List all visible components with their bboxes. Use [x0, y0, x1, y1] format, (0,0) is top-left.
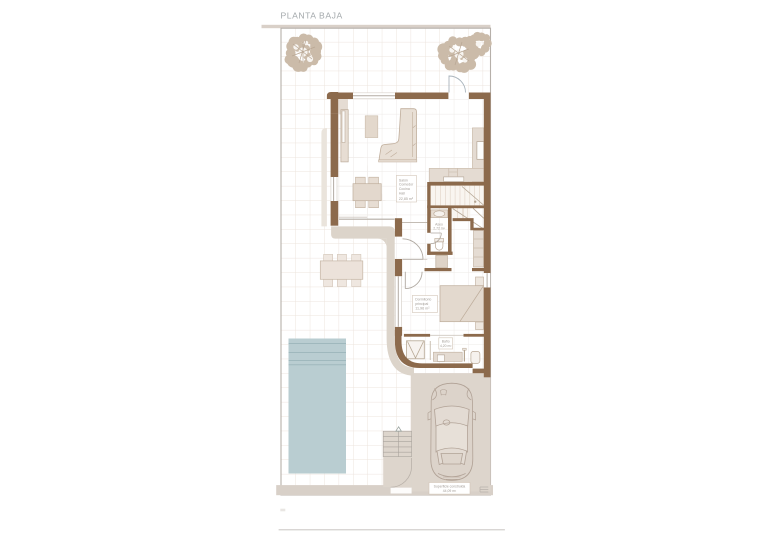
svg-text:Cocina: Cocina: [399, 187, 410, 191]
svg-text:principal: principal: [415, 302, 428, 306]
svg-text:44,09 m²: 44,09 m²: [443, 489, 457, 493]
svg-text:2,72 m²: 2,72 m²: [433, 227, 445, 231]
svg-text:4,20 m²: 4,20 m²: [440, 344, 452, 348]
svg-text:11,96 m²: 11,96 m²: [415, 307, 430, 311]
svg-text:22,85 m²: 22,85 m²: [399, 197, 414, 201]
svg-text:Superficie construida: Superficie construida: [434, 484, 466, 488]
svg-text:Salón: Salón: [399, 178, 408, 182]
svg-text:Comedor: Comedor: [399, 183, 414, 187]
svg-text:PLANTA BAJA: PLANTA BAJA: [281, 11, 343, 21]
svg-text:Hall: Hall: [399, 192, 405, 196]
